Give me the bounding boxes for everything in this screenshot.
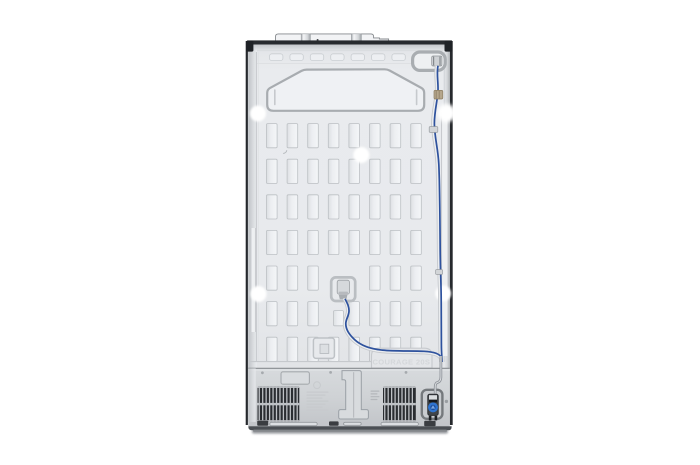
- svg-text:COURAGE 20S: COURAGE 20S: [373, 358, 431, 367]
